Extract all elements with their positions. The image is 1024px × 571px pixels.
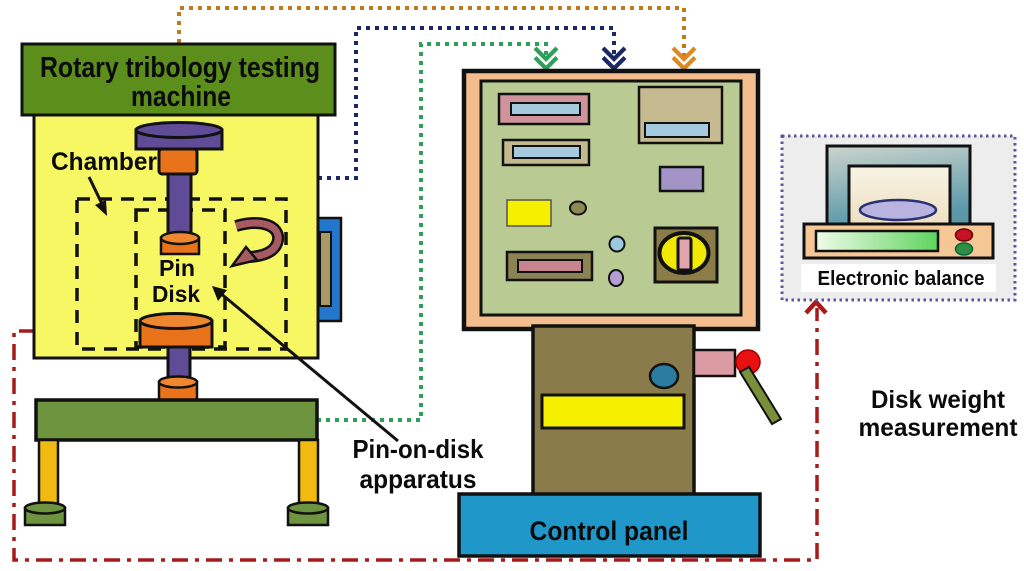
svg-text:Chamber: Chamber bbox=[51, 148, 157, 176]
svg-text:Rotary tribology testing: Rotary tribology testing bbox=[40, 52, 320, 84]
svg-text:machine: machine bbox=[131, 81, 231, 113]
svg-text:Disk: Disk bbox=[152, 281, 200, 307]
svg-text:apparatus: apparatus bbox=[360, 464, 477, 494]
svg-text:Disk weight: Disk weight bbox=[871, 386, 1006, 414]
svg-text:Pin: Pin bbox=[159, 255, 195, 281]
svg-text:Electronic balance: Electronic balance bbox=[818, 268, 985, 290]
svg-text:Control panel: Control panel bbox=[530, 516, 689, 546]
svg-text:Pin-on-disk: Pin-on-disk bbox=[353, 434, 484, 464]
svg-text:measurement: measurement bbox=[859, 414, 1019, 442]
